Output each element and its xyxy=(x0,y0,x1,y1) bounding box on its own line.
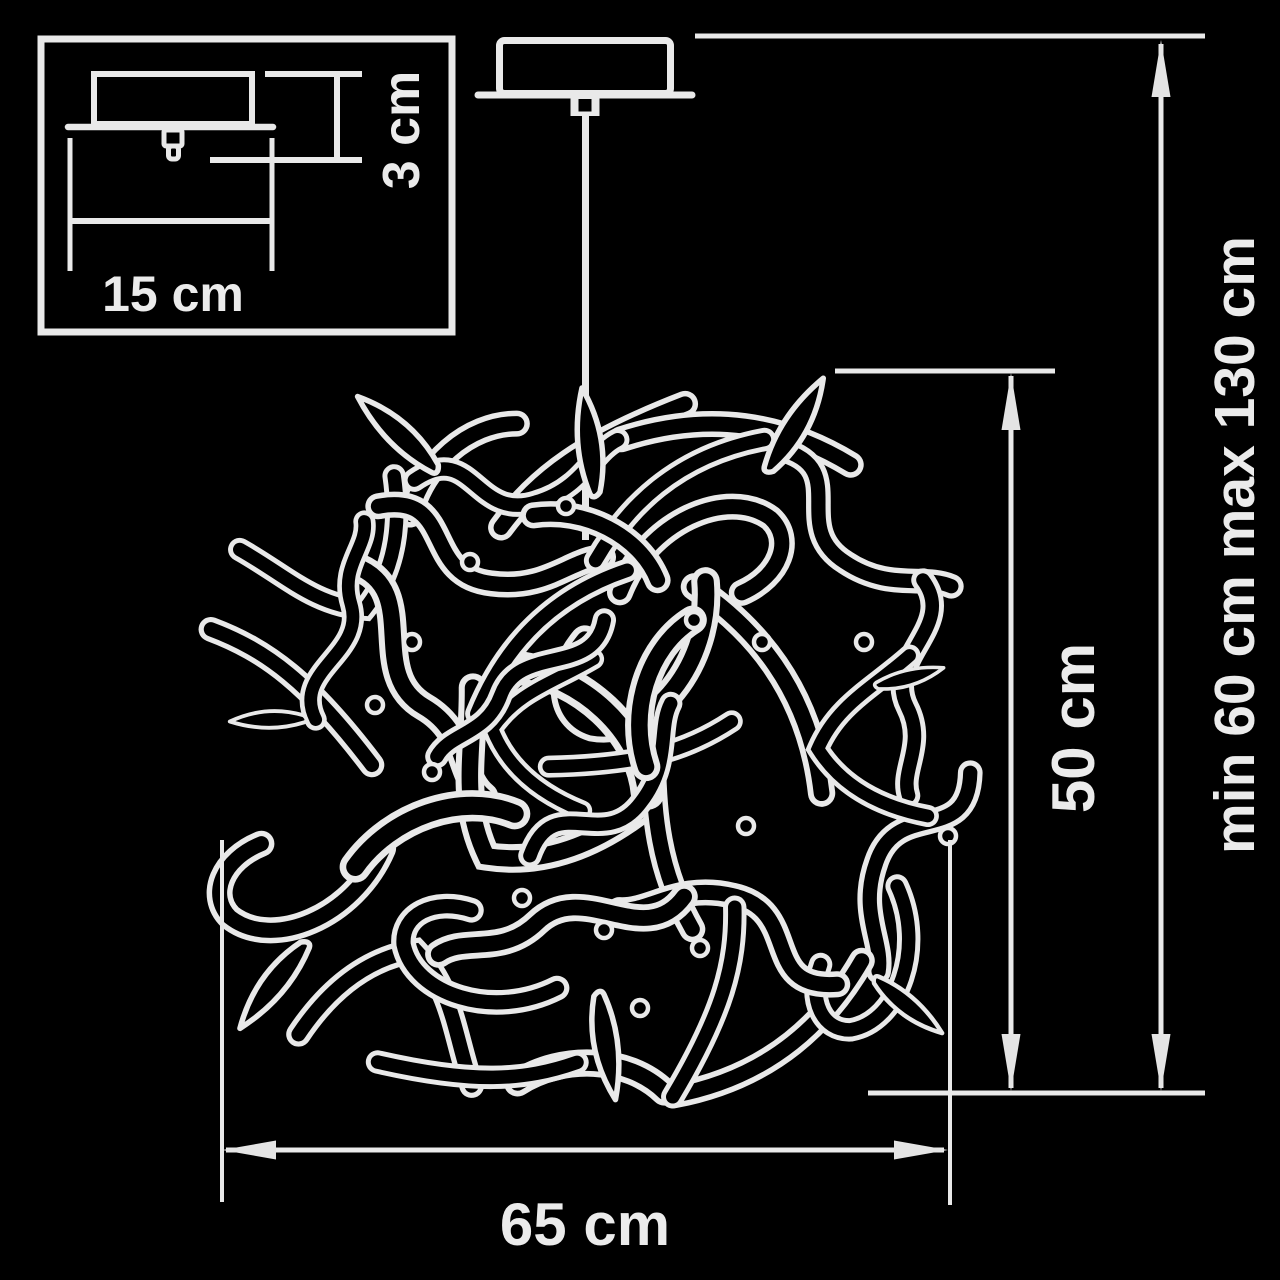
pendant-light-dimension-diagram: 15 cm 3 cm xyxy=(0,0,1280,1280)
shade-height-label: 50 cm xyxy=(1040,643,1107,813)
inset-height-label: 3 cm xyxy=(373,71,431,190)
arrow-up-icon xyxy=(1002,373,1021,430)
arrow-right-icon xyxy=(894,1141,948,1160)
inset-width-dimension: 15 cm xyxy=(70,138,272,322)
arrow-down-icon xyxy=(1002,1034,1021,1091)
inset-canopy-drawing xyxy=(68,74,273,159)
arrow-left-icon xyxy=(222,1141,276,1160)
shade-width-label: 65 cm xyxy=(500,1191,670,1258)
arrow-up-icon xyxy=(1152,40,1171,97)
inset-canopy-bracket xyxy=(94,74,252,124)
main-canopy xyxy=(478,41,692,117)
arrow-down-icon xyxy=(1152,1034,1171,1091)
shade-tangle-illustration xyxy=(204,373,981,1161)
inset-detail-box: 15 cm 3 cm xyxy=(41,39,452,332)
overall-height-label: min 60 cm max 130 cm xyxy=(1203,236,1267,854)
inset-width-label: 15 cm xyxy=(102,266,244,322)
canopy-box xyxy=(500,41,671,94)
inset-screw-tip xyxy=(169,146,179,159)
cord-grip-hole xyxy=(579,99,592,112)
